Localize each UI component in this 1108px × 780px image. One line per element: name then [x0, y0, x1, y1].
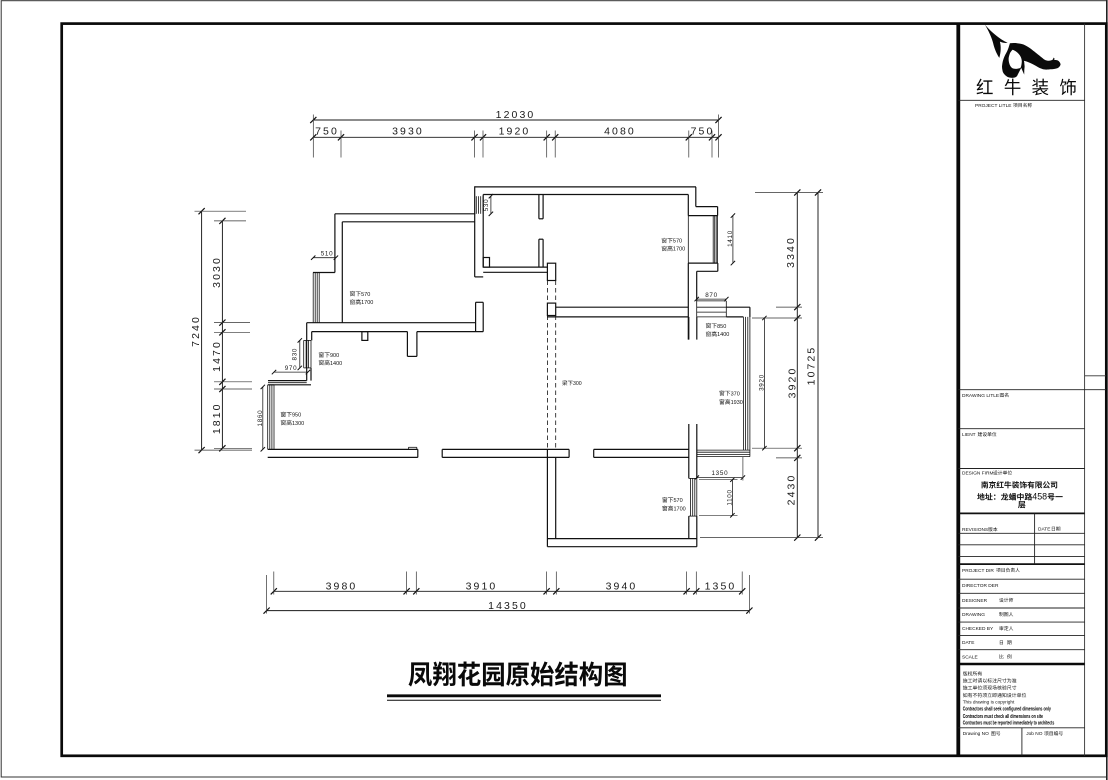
svg-text:750: 750: [315, 126, 339, 138]
svg-text:510: 510: [321, 250, 334, 257]
svg-text:10725: 10725: [806, 346, 818, 386]
svg-text:LIENT: LIENT: [962, 432, 976, 438]
svg-text:Contractors shall seek configu: Contractors shall seek configured dimens…: [963, 706, 1052, 712]
svg-text:This drawing is copyright: This drawing is copyright: [963, 700, 1015, 705]
svg-text:3920: 3920: [759, 374, 766, 391]
svg-text:1810: 1810: [211, 402, 223, 434]
svg-text:530: 530: [483, 199, 490, 212]
svg-text:1300: 1300: [292, 421, 304, 427]
svg-text:DIRECTOR DER: DIRECTOR DER: [962, 583, 999, 589]
svg-text:900: 900: [330, 353, 339, 359]
svg-text:3920: 3920: [786, 367, 798, 399]
svg-text:970: 970: [285, 365, 298, 372]
svg-text:1470: 1470: [211, 340, 223, 372]
svg-text:1700: 1700: [674, 506, 686, 512]
svg-text:14350: 14350: [488, 600, 528, 612]
svg-text:DATE: DATE: [1038, 527, 1050, 533]
svg-text:PROJECT DIR: PROJECT DIR: [962, 568, 994, 574]
svg-text:DRAWING: DRAWING: [962, 612, 985, 618]
svg-text:Job NO: Job NO: [1026, 731, 1043, 737]
svg-text:SCALE: SCALE: [962, 654, 978, 660]
svg-text:1700: 1700: [673, 247, 685, 253]
svg-text:458: 458: [1032, 492, 1047, 502]
svg-text:1920: 1920: [499, 126, 531, 138]
svg-text:570: 570: [673, 239, 682, 245]
svg-text:570: 570: [361, 292, 370, 298]
svg-text:750: 750: [691, 126, 715, 138]
svg-text:950: 950: [292, 413, 301, 419]
svg-text:1400: 1400: [717, 332, 729, 338]
svg-text:830: 830: [292, 348, 299, 361]
svg-text:DRAWING LITLE: DRAWING LITLE: [962, 393, 999, 399]
svg-text:1860: 1860: [257, 410, 264, 427]
svg-text:3930: 3930: [392, 126, 424, 138]
svg-text:1350: 1350: [711, 470, 728, 477]
svg-text:DATE: DATE: [962, 640, 974, 646]
svg-text:7240: 7240: [190, 315, 202, 347]
svg-text:12030: 12030: [496, 109, 536, 121]
svg-text:Drawing NO: Drawing NO: [963, 731, 989, 737]
svg-text:3940: 3940: [606, 581, 638, 593]
svg-text:1930: 1930: [731, 400, 743, 406]
svg-text:4080: 4080: [604, 126, 636, 138]
svg-text:3910: 3910: [466, 581, 498, 593]
svg-text:PROJECT LITLE: PROJECT LITLE: [975, 103, 1011, 109]
svg-text:570: 570: [674, 498, 683, 504]
svg-text:2430: 2430: [785, 474, 797, 506]
svg-text:300: 300: [573, 381, 582, 387]
svg-text:1410: 1410: [727, 230, 734, 247]
svg-text:CHECKED BY: CHECKED BY: [962, 626, 994, 632]
svg-text:1100: 1100: [727, 489, 734, 505]
svg-text:DESIGNER: DESIGNER: [962, 598, 988, 604]
svg-text:3340: 3340: [785, 236, 797, 268]
svg-text:3980: 3980: [326, 581, 358, 593]
svg-text:1400: 1400: [330, 361, 342, 367]
svg-text:370: 370: [731, 391, 740, 397]
svg-text:Contractors must be reported i: Contractors must be reported immediately…: [963, 720, 1055, 726]
svg-text:850: 850: [717, 324, 726, 330]
svg-text:870: 870: [705, 292, 718, 299]
svg-text:1700: 1700: [361, 300, 373, 306]
svg-text:3030: 3030: [211, 256, 223, 288]
svg-text:DESIGN FIRM: DESIGN FIRM: [962, 471, 993, 477]
svg-text:REVISIONS: REVISIONS: [962, 527, 988, 533]
svg-text:Contractors must check all dim: Contractors must check all dimensions on…: [963, 713, 1044, 719]
svg-text:1350: 1350: [705, 581, 737, 593]
